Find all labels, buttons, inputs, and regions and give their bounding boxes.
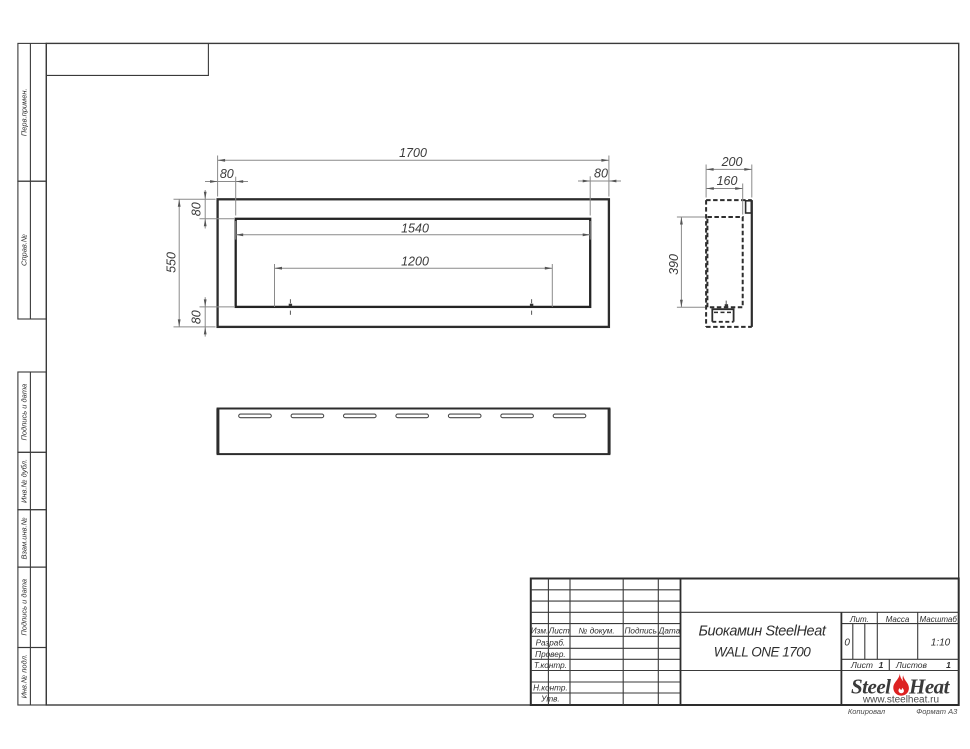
svg-text:Масштаб: Масштаб — [920, 615, 958, 624]
svg-text:Инв.№ дубл.: Инв.№ дубл. — [19, 459, 28, 503]
svg-text:1540: 1540 — [401, 221, 429, 235]
svg-text:Т.контр.: Т.контр. — [534, 661, 567, 670]
svg-text:Копировал: Копировал — [848, 707, 886, 716]
svg-text:Подпись: Подпись — [624, 627, 656, 636]
svg-text:№ докум.: № докум. — [579, 627, 615, 636]
svg-text:1: 1 — [879, 660, 884, 670]
svg-text:Перв.примен.: Перв.примен. — [19, 88, 28, 136]
svg-text:Масса: Масса — [886, 615, 910, 624]
svg-text:WALL ONE 1700: WALL ONE 1700 — [714, 645, 812, 660]
svg-text:80: 80 — [220, 167, 234, 181]
svg-text:550: 550 — [165, 252, 179, 273]
svg-text:Справ.№: Справ.№ — [19, 234, 28, 266]
svg-text:www.steelheat.ru: www.steelheat.ru — [862, 695, 939, 706]
svg-text:390: 390 — [667, 254, 681, 275]
svg-text:Н.контр.: Н.контр. — [533, 684, 568, 693]
svg-text:160: 160 — [717, 174, 738, 188]
svg-text:Лит.: Лит. — [849, 615, 869, 624]
svg-text:1700: 1700 — [399, 146, 427, 160]
svg-text:1:10: 1:10 — [931, 638, 951, 649]
svg-text:Провер.: Провер. — [535, 650, 566, 659]
svg-text:Биокамин SteelHeat: Биокамин SteelHeat — [699, 624, 827, 640]
svg-text:Лист: Лист — [850, 660, 873, 670]
svg-text:Листов: Листов — [895, 660, 928, 670]
svg-text:Подпись и дата: Подпись и дата — [19, 579, 28, 636]
svg-text:Лист: Лист — [548, 627, 570, 636]
svg-text:Утв.: Утв. — [540, 695, 560, 704]
svg-text:Изм.: Изм. — [531, 627, 548, 636]
svg-text:Инв.№ подл.: Инв.№ подл. — [19, 654, 28, 698]
svg-text:Формат А3: Формат А3 — [916, 707, 958, 716]
svg-text:80: 80 — [190, 310, 204, 324]
svg-text:Дата: Дата — [658, 627, 681, 636]
svg-text:1: 1 — [946, 660, 951, 670]
svg-text:Разраб.: Разраб. — [536, 639, 566, 648]
svg-text:80: 80 — [190, 202, 204, 216]
svg-text:1200: 1200 — [401, 255, 429, 269]
svg-text:Взам.инв.№: Взам.инв.№ — [19, 517, 28, 559]
svg-text:80: 80 — [594, 167, 608, 181]
svg-text:0: 0 — [844, 638, 850, 649]
svg-text:200: 200 — [721, 155, 743, 169]
svg-text:Подпись и дата: Подпись и дата — [19, 384, 28, 441]
